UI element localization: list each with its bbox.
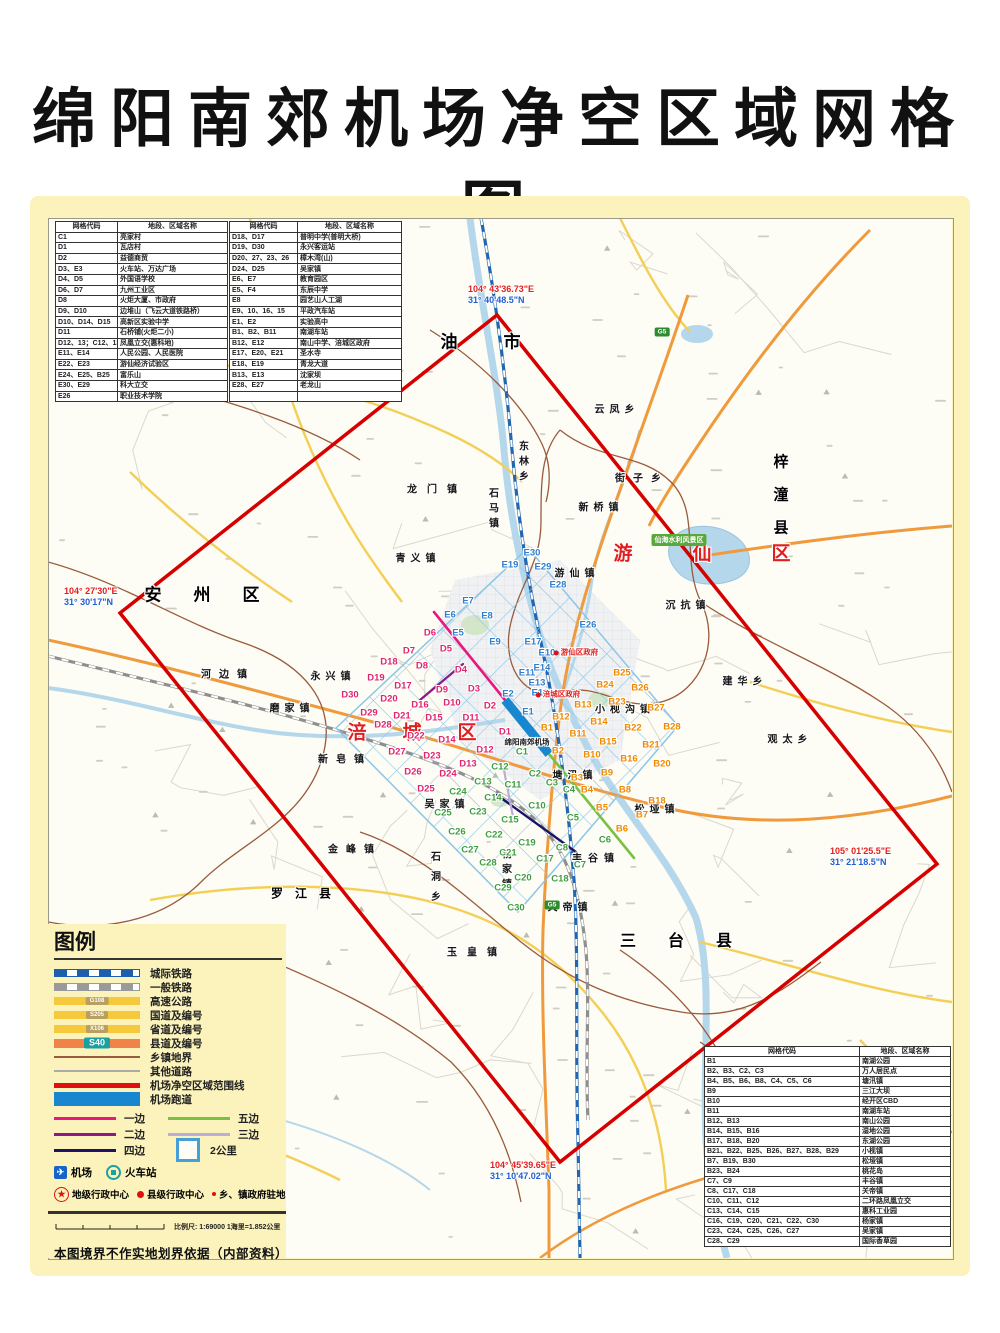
table-row: B23、B24桃花岛 [705,1167,951,1177]
edge-line-swatch [54,1117,116,1120]
table-row: D8火炬大厦、市政府 [56,296,228,307]
swatch-bar [54,1092,140,1106]
table-header: 网格代码 [56,222,118,233]
legend-item-label: 城际铁路 [150,966,192,981]
table-row: B13、E13沈家坝 [230,370,402,381]
legend-item: G108高速公路 [54,994,282,1008]
table-row: B14、B15、B16湿地公园 [705,1127,951,1137]
swatch-bar [54,1056,140,1058]
area-name-cell: 惠科工业园 [860,1207,951,1217]
grid-code-cell: B21、B22、B25、B26、B27、B28、B29 [705,1147,860,1157]
table-header: 地段、区域名称 [860,1047,951,1057]
legend-item-label: 一般铁路 [150,980,192,995]
table-row: B1南湖公园 [705,1057,951,1067]
scale-label: 比例尺: 1:69000 1海里=1.852公里 [174,1222,280,1232]
area-name-cell: 松垭镇 [860,1157,951,1167]
grid-code-cell: E5、F4 [230,285,298,296]
table-row: E8园艺山人工湖 [230,296,402,307]
road-number-badge: G108 [86,997,109,1005]
table-row: D18、D17普明中学(普明大桥) [230,232,402,243]
area-name-cell: 小枧镇 [860,1147,951,1157]
table-row: C7、C9丰谷镇 [705,1177,951,1187]
poi-legend-item: 火车站 [106,1165,157,1180]
area-name-cell: 石桥铺(火炬二小) [118,327,228,338]
edge-label: 五边 [238,1111,259,1126]
area-name-cell: 湿地公园 [860,1127,951,1137]
area-name-cell: 关帝镇 [860,1187,951,1197]
table-row: E22、E23游仙经济试验区 [56,359,228,370]
legend: 图例 城际铁路一般铁路G108高速公路S205国道及编号X106省道及编号S40… [48,924,286,1258]
legend-item-label: 其他道路 [150,1064,192,1079]
grid-code-cell: D2 [56,253,118,264]
area-name-cell: 南湖公园 [860,1057,951,1067]
grid-code-cell: D1 [56,243,118,254]
edge-legend-item: 一边 [54,1111,168,1126]
area-name-cell: 国际香草园 [860,1237,951,1247]
legend-item: X106省道及编号 [54,1022,282,1036]
table-row: E30、E29科大立交 [56,380,228,391]
table-row: D19、D30永兴客运站 [230,243,402,254]
admin-legend-item: 乡、镇政府驻地 [212,1187,286,1201]
legend-item: S40县道及编号 [54,1036,282,1050]
grid-code-cell: C8、C17、C18 [705,1187,860,1197]
table-row: E26职业技术学院 [56,391,228,402]
legend-item: 机场净空区域范围线 [54,1078,282,1092]
table-row: D10、D14、D15高新区实验中学 [56,317,228,328]
grid-code-cell: E28、E27 [230,380,298,391]
grid-code-cell [230,391,298,402]
area-name-cell: 瓦店村 [118,243,228,254]
grid-code-cell: E1、E2 [230,317,298,328]
road-orange-swatch: S40 [54,1039,140,1048]
table-row: E17、E20、E21圣水寺 [230,349,402,360]
legend-divider [48,1211,286,1214]
area-name-cell: 塘汛镇 [860,1077,951,1087]
table-row: E1、E2实验高中 [230,317,402,328]
area-name-cell: 二环路凤凰立交 [860,1197,951,1207]
legend-edge-items: 一边五边二边三边四边2公里 [54,1110,282,1158]
grid-code-cell: B9 [705,1087,860,1097]
edge-legend-item: 二边 [54,1127,168,1142]
table-row: B1、B2、B11南湖车站 [230,327,402,338]
grid-cell-size-label: 2公里 [210,1143,237,1158]
swatch-bar [54,1083,140,1088]
legend-item-label: 省道及编号 [150,1022,203,1037]
edge-line-swatch [168,1133,230,1136]
grid-code-cell: D3、E3 [56,264,118,275]
area-name-cell: 圣水寺 [298,349,402,360]
grid-cell-legend-item: 2公里 [168,1138,282,1162]
table-row: D20、27、23、26樟木湾(山) [230,253,402,264]
admin-legend-item: 县级行政中心 [137,1187,204,1201]
road-number-badge: S205 [86,1011,108,1019]
area-name-cell: 樟木湾(山) [298,253,402,264]
edge-line-swatch [168,1117,230,1120]
area-name-cell: 外国语学校 [118,274,228,285]
area-name-cell: 吴家镇 [860,1227,951,1237]
table-header: 网格代码 [230,222,298,233]
table-header-row: 网格代码地段、区域名称 [230,222,402,233]
table-row: C8、C17、C18关帝镇 [705,1187,951,1197]
grid-code-cell: B10 [705,1097,860,1107]
table-row: D9、D10边堆山（飞云大道铁路桥） [56,306,228,317]
area-name-cell: 九州工业区 [118,285,228,296]
area-name-cell: 永兴客运站 [298,243,402,254]
table-row: E9、10、16、15平政汽车站 [230,306,402,317]
grid-code-cell: E8 [230,296,298,307]
rail-gray-swatch [54,983,140,991]
table-row: E18、E19青龙大道 [230,359,402,370]
area-name-cell: 杨家镇 [860,1217,951,1227]
table-row: D2益德商贸 [56,253,228,264]
table-row [230,391,402,402]
grid-code-cell: B23、B24 [705,1167,860,1177]
area-name-cell: 游仙经济试验区 [118,359,228,370]
legend-admin-items: ★地级行政中心县级行政中心乡、镇政府驻地 [54,1183,282,1205]
legend-item-label: 机场跑道 [150,1092,192,1107]
grid-code-cell: D9、D10 [56,306,118,317]
line-brown-swatch [54,1056,140,1058]
grid-code-cell: C7、C9 [705,1177,860,1187]
area-name-cell: 亮家村 [118,232,228,243]
grid-code-table-3: 网格代码地段、区域名称B1南湖公园B2、B3、C2、C3万人居民点B4、B5、B… [704,1046,951,1247]
grid-code-cell: E24、E25、B25 [56,370,118,381]
grid-code-cell: E30、E29 [56,380,118,391]
admin-legend-item: ★地级行政中心 [54,1187,129,1202]
table-row: E6、E7教育园区 [230,274,402,285]
table-row: B9三江大坝 [705,1087,951,1097]
table-header: 地段、区域名称 [118,222,228,233]
grid-code-cell: C16、C19、C20、C21、C22、C30 [705,1217,860,1227]
grid-code-cell: B7、B19、B30 [705,1157,860,1167]
area-name-cell: 东辰中学 [298,285,402,296]
road-yellow-swatch: G108 [54,997,140,1005]
legend-title: 图例 [54,926,282,960]
area-name-cell: 吴家镇 [298,264,402,275]
grid-code-cell: E17、E20、E21 [230,349,298,360]
grid-code-cell: E18、E19 [230,359,298,370]
rail-blue-swatch [54,969,140,977]
grid-code-cell: D6、D7 [56,285,118,296]
train-station-icon [106,1165,121,1180]
admin-label: 乡、镇政府驻地 [219,1187,286,1201]
star-icon: ★ [54,1187,69,1202]
table-row: B10经开区CBD [705,1097,951,1107]
area-name-cell: 园艺山人工湖 [298,296,402,307]
grid-code-cell: B12、B13 [705,1117,860,1127]
area-name-cell: 职业技术学院 [118,391,228,402]
table-header-row: 网格代码地段、区域名称 [705,1047,951,1057]
area-name-cell: 万人居民点 [860,1067,951,1077]
area-name-cell: 火炬大厦、市政府 [118,296,228,307]
edge-label: 二边 [124,1127,145,1142]
area-name-cell: 沈家坝 [298,370,402,381]
grid-code-cell: E26 [56,391,118,402]
edge-line-swatch [54,1149,116,1152]
table-row: C13、C14、C15惠科工业园 [705,1207,951,1217]
runway-sw-swatch [54,1092,140,1106]
grid-code-table-2: 网格代码地段、区域名称D18、D17普明中学(普明大桥)D19、D30永兴客运站… [229,221,402,402]
grid-code-table-1: 网格代码地段、区域名称C1亮家村D1瓦店村D2益德商贸D3、E3火车站、万达广场… [55,221,228,402]
dot-small-icon [212,1192,216,1196]
grid-code-cell: E11、E14 [56,349,118,360]
legend-item: S205国道及编号 [54,1008,282,1022]
area-name-cell: 三江大坝 [860,1087,951,1097]
page: 绵阳南郊机场净空区域网格图 [0,0,1000,1333]
grid-code-cell: D8 [56,296,118,307]
area-name-cell: 普明中学(普明大桥) [298,232,402,243]
admin-label: 县级行政中心 [147,1187,204,1201]
table-row: B12、B13南山公园 [705,1117,951,1127]
grid-code-cell: B2、B3、C2、C3 [705,1067,860,1077]
grid-code-cell: C23、C24、C25、C26、C27 [705,1227,860,1237]
line-gray-swatch [54,1070,140,1072]
area-name-cell: 东湖公园 [860,1137,951,1147]
area-name-cell: 凤凰立交(惠科地) [118,338,228,349]
legend-item-label: 县道及编号 [150,1036,203,1051]
legend-item: 一般铁路 [54,980,282,994]
edge-label: 一边 [124,1111,145,1126]
area-name-cell: 南湖车站 [298,327,402,338]
area-name-cell: 实验高中 [298,317,402,328]
grid-code-cell: C1 [56,232,118,243]
grid-code-cell: E6、E7 [230,274,298,285]
grid-code-cell: C13、C14、C15 [705,1207,860,1217]
map-disclaimer: 本图境界不作实地划界依据（内部资料） [54,1243,282,1262]
legend-edge-row: 四边2公里 [54,1142,282,1158]
road-number-badge: X106 [86,1025,108,1033]
table-row: B7、B19、B30松垭镇 [705,1157,951,1167]
grid-code-cell: D24、D25 [230,264,298,275]
table-row: D12、13；C12、13凤凰立交(惠科地) [56,338,228,349]
table-row: B17、B18、B20东湖公园 [705,1137,951,1147]
grid-code-cell: B1、B2、B11 [230,327,298,338]
area-name-cell: 平政汽车站 [298,306,402,317]
road-yellow-swatch: X106 [54,1025,140,1033]
area-name-cell: 老龙山 [298,380,402,391]
table-row: C28、C29国际香草园 [705,1237,951,1247]
legend-item-label: 机场净空区域范围线 [150,1078,245,1093]
legend-item: 其他道路 [54,1064,282,1078]
area-name-cell: 丰谷镇 [860,1177,951,1187]
grid-code-cell: B1 [705,1057,860,1067]
grid-code-cell: E9、10、16、15 [230,306,298,317]
airport-icon: ✈ [54,1166,67,1179]
area-name-cell: 科大立交 [118,380,228,391]
legend-item: 城际铁路 [54,966,282,980]
legend-item-label: 国道及编号 [150,1008,203,1023]
area-name-cell: 青龙大道 [298,359,402,370]
legend-item-label: 高速公路 [150,994,192,1009]
grid-code-cell: D20、27、23、26 [230,253,298,264]
edge-label: 四边 [124,1143,145,1158]
area-name-cell: 桃花岛 [860,1167,951,1177]
table-row: C1亮家村 [56,232,228,243]
swatch-bar [54,969,140,977]
table-header: 地段、区域名称 [298,222,402,233]
area-name-cell: 边堆山（飞云大道铁路桥） [118,306,228,317]
table-row: E24、E25、B25富乐山 [56,370,228,381]
table-header: 网格代码 [705,1047,860,1057]
table-row: B4、B5、B6、B8、C4、C5、C6塘汛镇 [705,1077,951,1087]
table-row: C16、C19、C20、C21、C22、C30杨家镇 [705,1217,951,1227]
area-name-cell: 人民公园、人民医院 [118,349,228,360]
edge-legend-item: 四边 [54,1143,168,1158]
legend-item: 乡镇地界 [54,1050,282,1064]
grid-code-cell: B4、B5、B6、B8、C4、C5、C6 [705,1077,860,1087]
admin-label: 地级行政中心 [72,1187,129,1201]
table-row: D1瓦店村 [56,243,228,254]
swatch-bar [54,983,140,991]
table-row: D6、D7九州工业区 [56,285,228,296]
legend-line-items: 城际铁路一般铁路G108高速公路S205国道及编号X106省道及编号S40县道及… [54,966,282,1106]
scale-bar-row: 比例尺: 1:69000 1海里=1.852公里 [54,1219,282,1235]
scale-bar [54,1221,166,1233]
table-row: E28、E27老龙山 [230,380,402,391]
swatch-bar [54,1070,140,1072]
grid-code-cell: B17、B18、B20 [705,1137,860,1147]
table-row: B12、E12南山中学、涪城区政府 [230,338,402,349]
table-row: D11石桥铺(火炬二小) [56,327,228,338]
poi-label: 火车站 [125,1165,157,1180]
grid-code-cell: E22、E23 [56,359,118,370]
table-row: C23、C24、C25、C26、C27吴家镇 [705,1227,951,1237]
road-yellow-swatch: S205 [54,1011,140,1019]
grid-code-cell: D10、D14、D15 [56,317,118,328]
table-row: D3、E3火车站、万达广场 [56,264,228,275]
legend-poi-items: ✈机场火车站 [54,1161,282,1183]
grid-cell-swatch [176,1138,200,1162]
area-name-cell: 经开区CBD [860,1097,951,1107]
grid-code-cell: D12、13；C12、13 [56,338,118,349]
table-row: D4、D5外国语学校 [56,274,228,285]
legend-item: 机场跑道 [54,1092,282,1106]
poi-label: 机场 [71,1165,92,1180]
poi-legend-item: ✈机场 [54,1165,92,1180]
table-row: B21、B22、B25、B26、B27、B28、B29小枧镇 [705,1147,951,1157]
grid-code-cell: C10、C11、C12 [705,1197,860,1207]
line-red-swatch [54,1083,140,1088]
dot-large-icon [137,1191,144,1198]
grid-code-cell: D18、D17 [230,232,298,243]
edge-line-swatch [54,1133,116,1136]
area-name-cell: 火车站、万达广场 [118,264,228,275]
grid-code-cell: B14、B15、B16 [705,1127,860,1137]
legend-item-label: 乡镇地界 [150,1050,192,1065]
legend-edge-row: 一边五边 [54,1110,282,1126]
area-name-cell: 南山中学、涪城区政府 [298,338,402,349]
table-row: E5、F4东辰中学 [230,285,402,296]
table-row: D24、D25吴家镇 [230,264,402,275]
table-row: E11、E14人民公园、人民医院 [56,349,228,360]
table-row: B2、B3、C2、C3万人居民点 [705,1067,951,1077]
area-name-cell [298,391,402,402]
grid-code-cell: D19、D30 [230,243,298,254]
area-name-cell: 南山公园 [860,1117,951,1127]
table-row: C10、C11、C12二环路凤凰立交 [705,1197,951,1207]
edge-legend-item: 五边 [168,1111,282,1126]
area-name-cell: 南湖车站 [860,1107,951,1117]
grid-code-cell: B13、E13 [230,370,298,381]
grid-code-cell: D4、D5 [56,274,118,285]
grid-code-cell: C28、C29 [705,1237,860,1247]
area-name-cell: 高新区实验中学 [118,317,228,328]
table-header-row: 网格代码地段、区域名称 [56,222,228,233]
grid-code-cell: B12、E12 [230,338,298,349]
grid-code-cell: D11 [56,327,118,338]
grid-code-cell: B11 [705,1107,860,1117]
area-name-cell: 教育园区 [298,274,402,285]
table-row: B11南湖车站 [705,1107,951,1117]
area-name-cell: 益德商贸 [118,253,228,264]
area-name-cell: 富乐山 [118,370,228,381]
road-number-badge: S40 [84,1038,110,1049]
